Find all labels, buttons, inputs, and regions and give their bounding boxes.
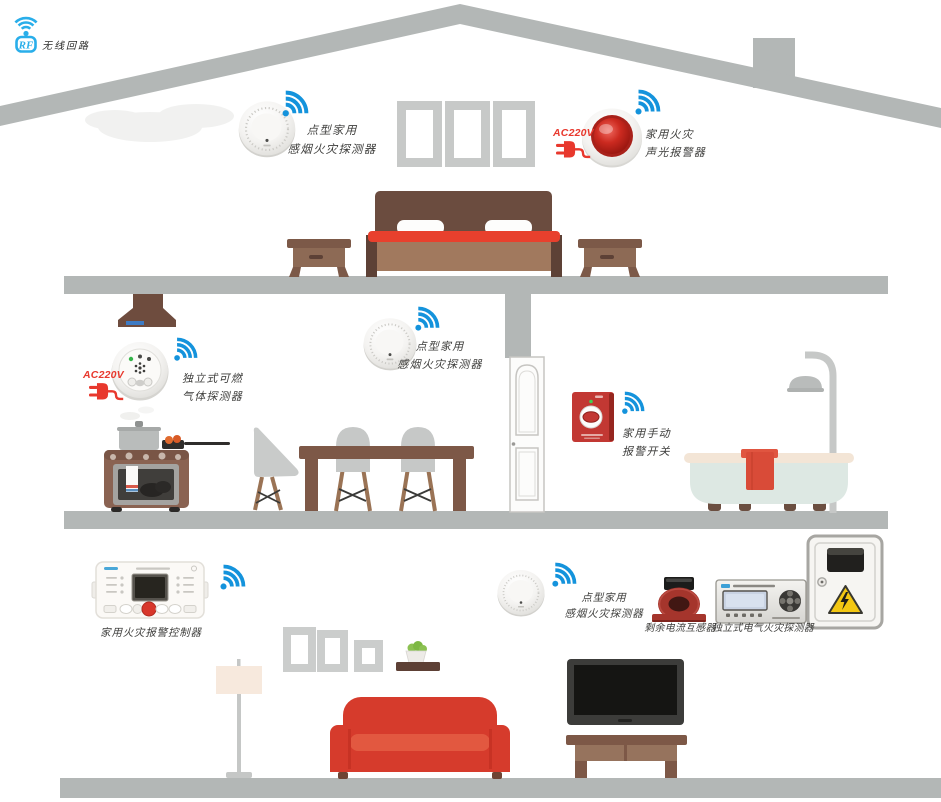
floor-lamp <box>216 659 262 778</box>
sofa <box>330 697 510 779</box>
gas-power-label: AC220V <box>83 369 124 381</box>
label-line: 感烟火灾探测器 <box>392 356 488 374</box>
tv-stand <box>566 735 687 778</box>
wifi-dot-icon <box>23 31 28 36</box>
smoke-detector-living <box>498 570 545 617</box>
wifi-icon <box>622 393 643 414</box>
nightstand-left <box>287 239 351 277</box>
efd-label: 独立式电气火灾探测器 <box>710 622 816 636</box>
sound-light-alarm-label: 家用火灾 声光报警器 <box>645 126 735 162</box>
bathtub <box>684 449 854 511</box>
label-line: 报警开关 <box>622 443 702 461</box>
smoke-attic-label: 点型家用 感烟火灾探测器 <box>277 122 387 160</box>
sound-light-power-label: AC220V <box>553 127 594 139</box>
dining-chair-1 <box>336 427 370 511</box>
floor-upper <box>64 276 888 294</box>
control-panel-label: 家用火灾报警控制器 <box>96 626 206 642</box>
floor-ground <box>60 778 941 798</box>
plant-shelf <box>396 641 440 671</box>
door <box>510 357 544 512</box>
home-fire-alarm-diagram: RF <box>0 0 941 802</box>
gas-detector-label: 独立式可燃 气体探测器 <box>182 370 277 406</box>
rct-label: 剩余电流互感器 <box>642 622 718 636</box>
dining-table <box>299 446 474 511</box>
label-line: 独立式电气火灾探测器 <box>710 622 816 636</box>
label-line: 感烟火灾探测器 <box>277 141 387 160</box>
label-line: 剩余电流互感器 <box>642 622 718 636</box>
stove <box>104 407 230 513</box>
residual-current-transformer <box>652 577 706 622</box>
bed <box>366 191 562 277</box>
floor-middle <box>64 511 888 529</box>
tv <box>567 659 684 725</box>
dining-chair-side <box>254 428 299 511</box>
picture-frames <box>283 627 383 672</box>
led-green <box>589 400 593 404</box>
wifi-icon <box>174 339 195 360</box>
wifi-icon <box>415 308 437 330</box>
wifi-icon <box>283 93 307 117</box>
panel-red-button <box>142 602 156 616</box>
label-line: 点型家用 <box>277 122 387 141</box>
label-line: 点型家用 <box>560 591 648 607</box>
nightstand-right <box>578 239 642 277</box>
tv-screen <box>574 665 677 715</box>
wifi-icon <box>220 567 243 590</box>
label-line: 独立式可燃 <box>182 370 277 388</box>
logo-caption: 无线回路 <box>42 37 90 52</box>
smoke-living-label: 点型家用 感烟火灾探测器 <box>560 591 648 623</box>
label-line: 感烟火灾探测器 <box>560 607 648 623</box>
electrical-box <box>808 536 882 628</box>
manual-alarm-switch <box>572 392 614 442</box>
led-green <box>129 357 133 361</box>
wifi-icon <box>552 564 574 586</box>
door-knob <box>512 442 516 446</box>
smoke-middle-label: 点型家用 感烟火灾探测器 <box>392 338 488 374</box>
attic-windows <box>397 101 535 167</box>
label-line: 家用火灾报警控制器 <box>96 626 206 642</box>
label-line: 声光报警器 <box>645 144 735 162</box>
fire-alarm-control-panel <box>92 562 208 618</box>
label-line: 家用手动 <box>622 425 702 443</box>
panel-screen <box>135 577 165 598</box>
label-line: 家用火灾 <box>645 126 735 144</box>
wifi-icon <box>635 92 658 115</box>
dining-chair-2 <box>401 427 435 511</box>
cloud <box>85 104 234 142</box>
rf-logo-text: RF <box>18 40 34 52</box>
label-line: 气体探测器 <box>182 388 277 406</box>
house-illustration: RF <box>0 0 941 802</box>
rf-wireless-logo: RF <box>15 18 36 51</box>
wall-partition <box>505 294 531 358</box>
label-line: 点型家用 <box>392 338 488 356</box>
manual-switch-label: 家用手动 报警开关 <box>622 425 702 461</box>
electrical-fire-detector <box>716 580 806 623</box>
range-hood <box>118 294 176 327</box>
